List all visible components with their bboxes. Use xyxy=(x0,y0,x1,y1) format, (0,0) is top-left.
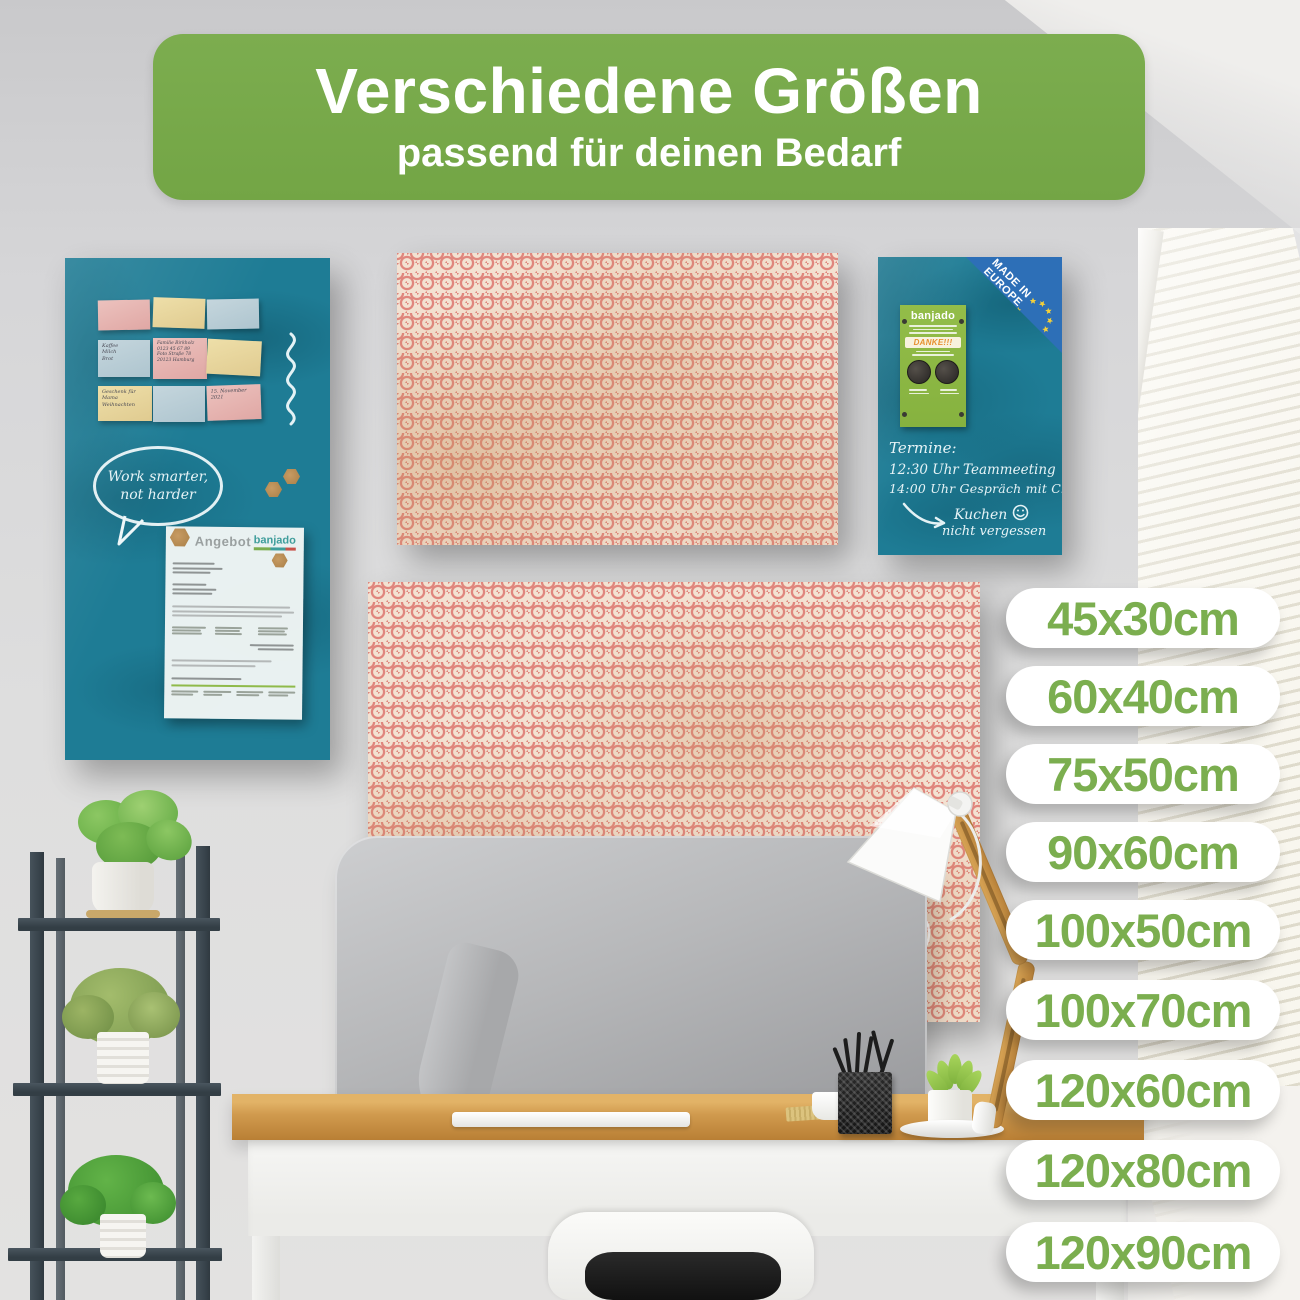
sticky-note: 15. November 2021 xyxy=(206,384,261,421)
pinned-flyer: banjado DANKE!!! xyxy=(900,305,966,427)
lamp-shade xyxy=(840,778,990,928)
desk-leg xyxy=(252,1236,280,1300)
plant-pot xyxy=(100,1214,146,1258)
size-label: 60x40cm xyxy=(1047,669,1239,724)
speech-bubble: Work smarter, not harder xyxy=(93,446,223,526)
size-label: 120x80cm xyxy=(1035,1143,1252,1198)
sticky-note: Geschenk für Mama Weihnachten xyxy=(98,386,152,421)
termine-item-2: 14:00 Uhr Gespräch mit Chefin xyxy=(889,480,1061,499)
size-label: 45x30cm xyxy=(1047,591,1239,646)
size-badge: 100x70cm xyxy=(1006,980,1280,1040)
cork-pin-icon xyxy=(265,482,282,497)
sticky-note xyxy=(152,297,205,329)
flyer-danke-text: DANKE!!! xyxy=(905,337,961,348)
sticky-note: Familie Birkholz 0123 45 67 89 Foto Stra… xyxy=(153,338,207,379)
eu-stars-icon xyxy=(1006,291,1060,349)
sticky-note xyxy=(98,300,151,331)
shelf-board xyxy=(18,918,220,931)
speech-line-1: Work smarter, xyxy=(108,468,209,486)
shelf-rail xyxy=(196,846,210,1300)
pot-saucer xyxy=(86,910,160,918)
plant-pot xyxy=(92,862,154,914)
speech-bubble-tail xyxy=(117,514,151,548)
flyer-dog-photos xyxy=(905,360,961,384)
memo-board-left: Kaffee Milch Brot Familie Birkholz 0123 … xyxy=(65,258,330,760)
size-label: 120x90cm xyxy=(1035,1225,1252,1280)
shelf-board xyxy=(13,1083,221,1096)
handwritten-note-1: Kuchen xyxy=(954,504,1029,523)
page-title: Verschiedene Größen xyxy=(315,58,983,125)
sticky-note xyxy=(207,299,260,330)
keyboard xyxy=(452,1112,690,1127)
cork-pin-icon xyxy=(283,469,300,484)
handwritten-schedule: Termine: 12:30 Uhr Teammeeting 14:00 Uhr… xyxy=(889,437,1061,499)
plant-pot xyxy=(97,1032,149,1084)
cork-pin-icon xyxy=(170,528,190,546)
sticky-note xyxy=(153,386,205,422)
document-text-lines xyxy=(171,562,296,697)
pinned-offer-document: Angebot banjado xyxy=(164,526,304,719)
header-banner: Verschiedene Größen passend für deinen B… xyxy=(153,34,1145,200)
brand-color-bar xyxy=(254,547,296,550)
size-badge: 120x80cm xyxy=(1006,1140,1280,1200)
document-footer-columns xyxy=(171,689,295,698)
size-label: 100x50cm xyxy=(1035,903,1252,958)
memo-board-right: MADE IN EUROPE banjado xyxy=(878,257,1062,555)
sticky-note xyxy=(206,339,262,377)
squiggle-doodle-icon xyxy=(277,330,307,426)
size-label: 90x60cm xyxy=(1047,825,1239,880)
dog-photo xyxy=(935,360,959,384)
product-scene: Verschiedene Größen passend für deinen B… xyxy=(0,0,1300,1300)
size-badge: 75x50cm xyxy=(1006,744,1280,804)
document-title: Angebot xyxy=(195,534,251,550)
made-in-europe-ribbon: MADE IN EUROPE xyxy=(966,257,1062,353)
size-label: 75x50cm xyxy=(1047,747,1239,802)
sticky-note: Kaffee Milch Brot xyxy=(98,340,150,377)
size-badge: 90x60cm xyxy=(1006,822,1280,882)
flyer-brand-logo: banjado xyxy=(905,310,961,322)
termine-item-1: 12:30 Uhr Teammeeting xyxy=(889,460,1061,480)
document-brand-logo: banjado xyxy=(254,534,296,546)
size-badge: 120x90cm xyxy=(1006,1222,1280,1282)
size-label: 100x70cm xyxy=(1035,983,1252,1038)
size-badge: 45x30cm xyxy=(1006,588,1280,648)
handwritten-note-2: nicht vergessen xyxy=(942,524,1046,539)
smiley-icon xyxy=(1012,504,1029,521)
chair-cushion xyxy=(585,1252,781,1300)
page-subtitle: passend für deinen Bedarf xyxy=(397,131,902,176)
speech-line-2: not harder xyxy=(120,486,196,504)
dog-photo xyxy=(907,360,931,384)
size-badge: 60x40cm xyxy=(1006,666,1280,726)
pen-cup xyxy=(838,1072,892,1134)
termine-heading: Termine: xyxy=(889,437,1061,460)
size-badge: 100x50cm xyxy=(1006,900,1280,960)
pinboard-medium xyxy=(397,253,838,545)
size-label: 120x60cm xyxy=(1035,1063,1252,1118)
size-badge: 120x60cm xyxy=(1006,1060,1280,1120)
